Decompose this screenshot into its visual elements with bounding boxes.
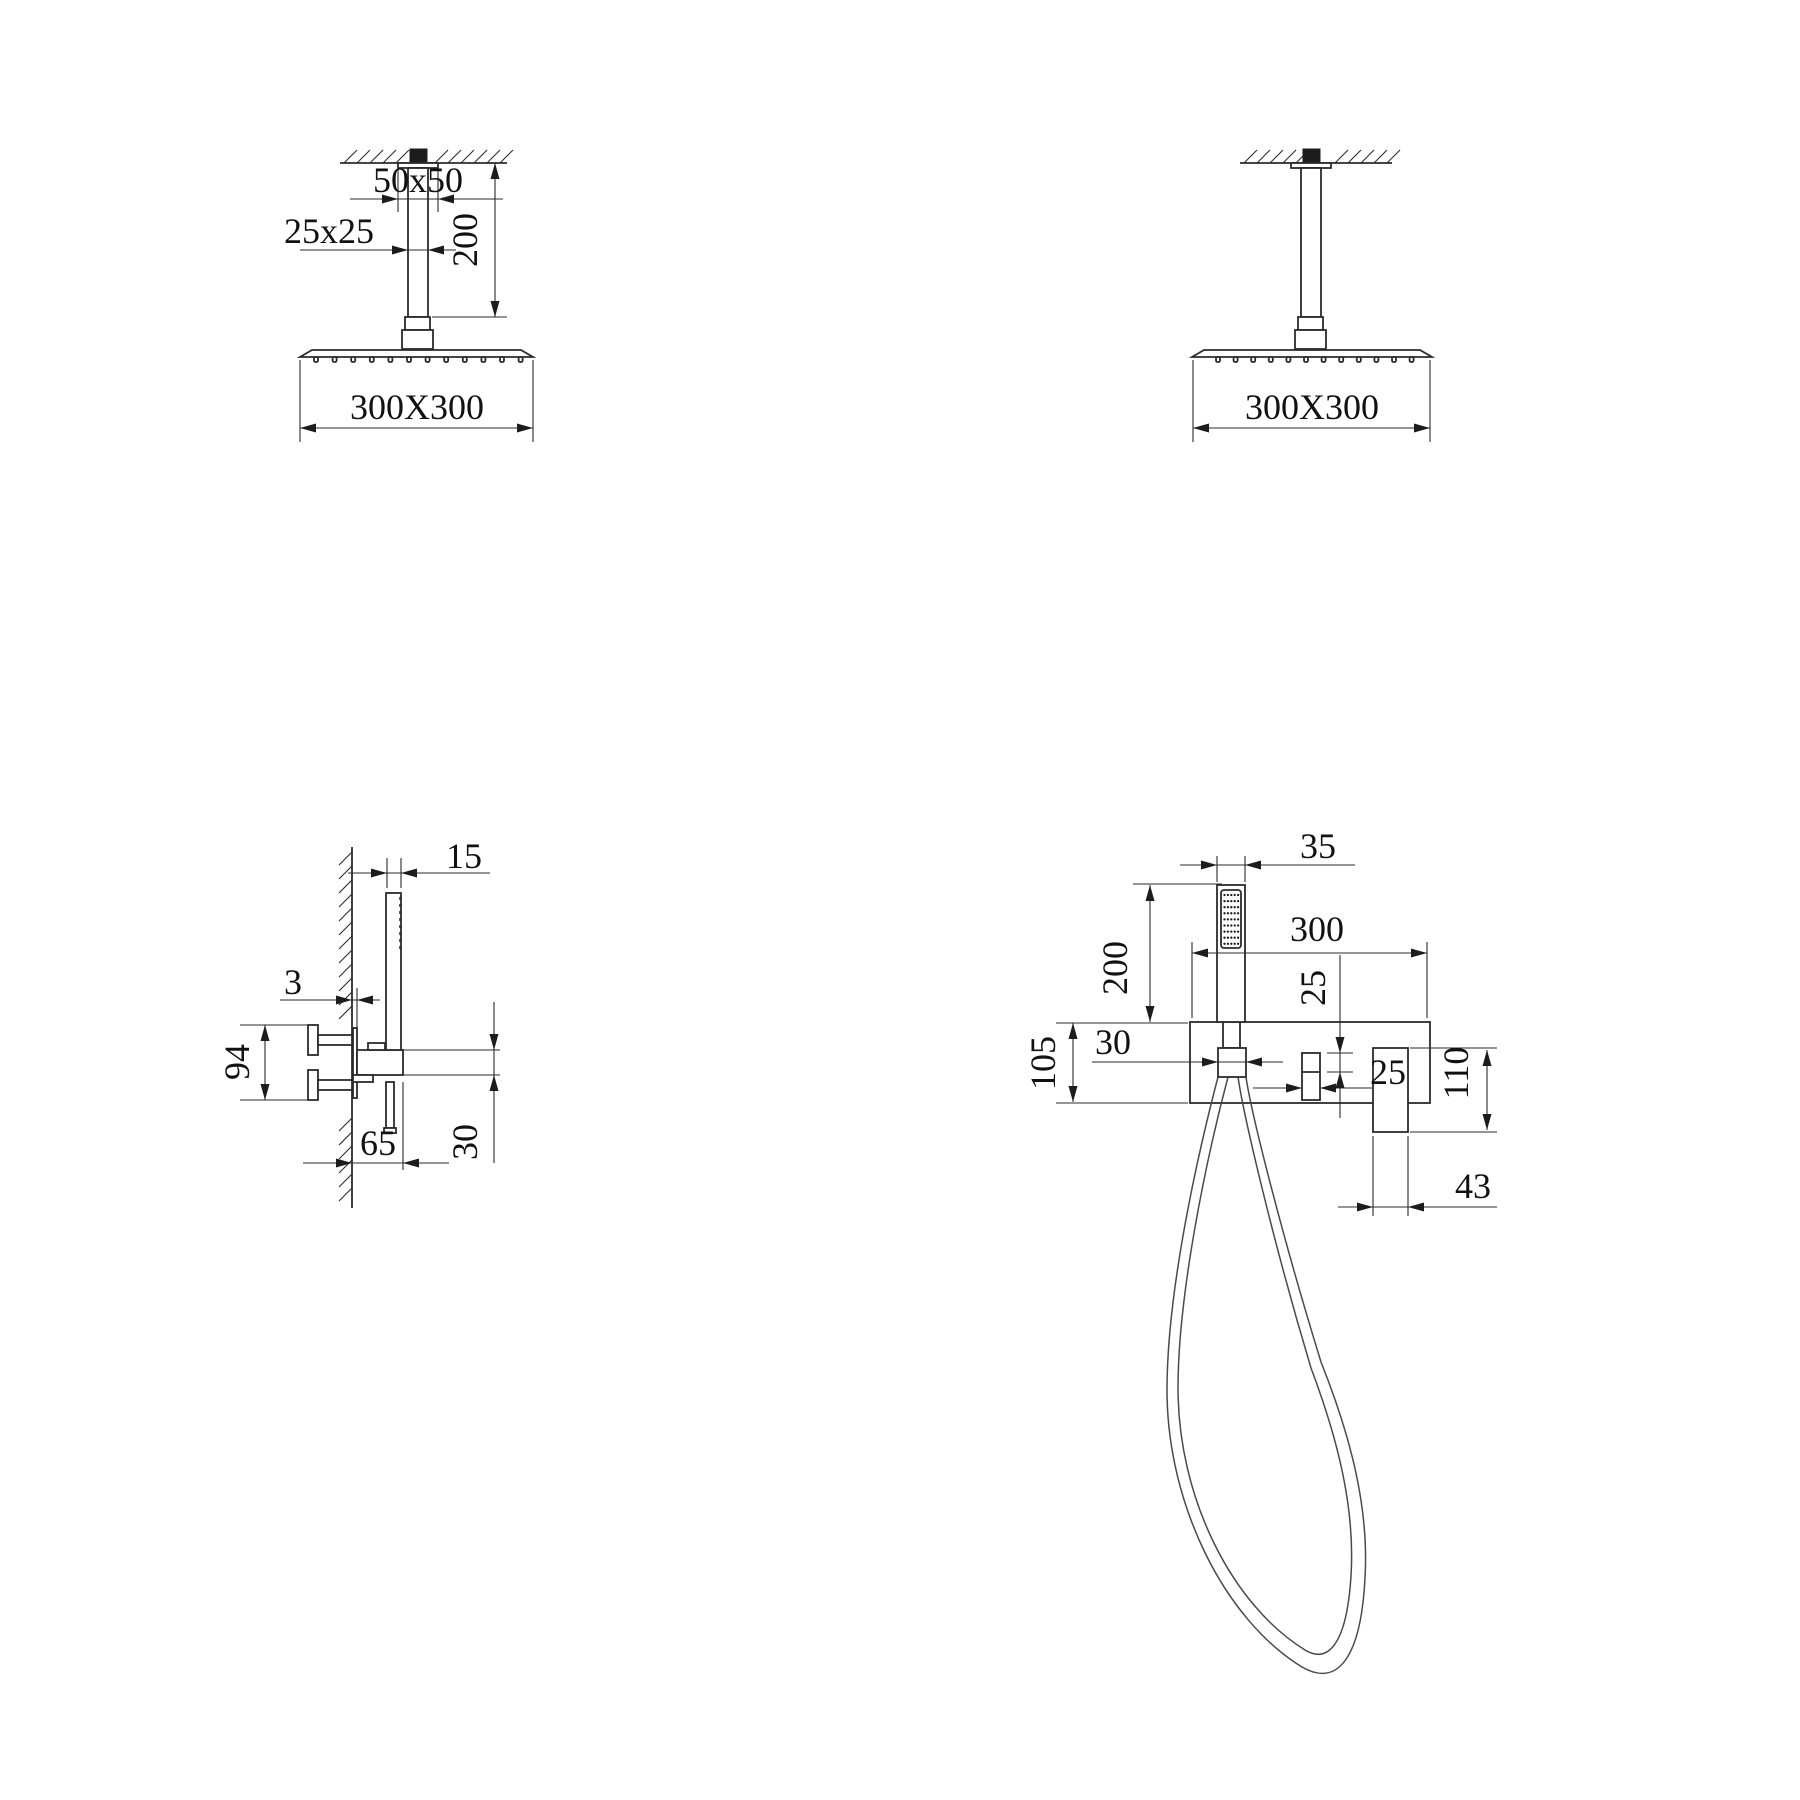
dim-label-valve-height: 94 bbox=[217, 1044, 257, 1080]
ceiling-pipe-stub bbox=[1303, 149, 1320, 163]
arrowhead bbox=[357, 996, 373, 1005]
nozzle bbox=[1286, 357, 1290, 362]
figure-ceiling-shower-right: 300X300 bbox=[1192, 149, 1432, 442]
hatch-tick bbox=[1244, 150, 1257, 163]
hatch-tick bbox=[339, 1132, 352, 1145]
hatch-tick bbox=[339, 880, 352, 893]
dim-label-spout-depth: 65 bbox=[360, 1123, 396, 1163]
hatch-tick bbox=[344, 150, 357, 163]
spray-dot bbox=[1234, 930, 1236, 932]
hatch-tick bbox=[339, 964, 352, 977]
arrowhead bbox=[428, 246, 444, 255]
arrowhead bbox=[1483, 1114, 1492, 1130]
dim-label-plate-height: 105 bbox=[1023, 1036, 1063, 1090]
spray-dot bbox=[1234, 943, 1236, 945]
dim-label-handle-width: 43 bbox=[1455, 1166, 1491, 1206]
arrowhead bbox=[517, 424, 533, 433]
dim-label-wall-gap: 3 bbox=[284, 962, 302, 1002]
spray-dot bbox=[1227, 924, 1229, 926]
wand-neck bbox=[1223, 1022, 1240, 1048]
hatch-tick bbox=[1335, 150, 1348, 163]
technical-drawing-page: 50x50 25x25 200 300X300 bbox=[0, 0, 1800, 1800]
spray-dot bbox=[1234, 900, 1236, 902]
spray-dot bbox=[1237, 943, 1239, 945]
arrowhead bbox=[392, 246, 408, 255]
hatch-tick bbox=[357, 150, 370, 163]
hatch-tick bbox=[500, 150, 513, 163]
spray-dot bbox=[1227, 912, 1229, 914]
hatch-tick bbox=[339, 908, 352, 921]
nozzle bbox=[1392, 357, 1396, 362]
shower-head-plate bbox=[300, 350, 533, 357]
hatch-tick bbox=[339, 1118, 352, 1131]
spray-dot bbox=[1230, 918, 1232, 920]
spray-dot bbox=[1237, 894, 1239, 896]
arrowhead bbox=[490, 1034, 499, 1050]
spray-dot bbox=[1230, 912, 1232, 914]
spray-dot bbox=[1223, 900, 1225, 902]
spray-dot bbox=[1237, 900, 1239, 902]
dim-label-holder-width: 30 bbox=[1095, 1022, 1131, 1062]
dim-label-flange-size: 50x50 bbox=[373, 160, 463, 200]
shower-head-plate bbox=[1192, 350, 1432, 357]
hatch-tick bbox=[474, 150, 487, 163]
arrowhead bbox=[1408, 1203, 1424, 1212]
spout-bottom-step bbox=[353, 1075, 373, 1082]
arrowhead bbox=[336, 996, 352, 1005]
supply-pipe-bottom bbox=[318, 1080, 352, 1090]
dim-label-wand-width: 35 bbox=[1300, 826, 1336, 866]
dim-label-spout-height: 30 bbox=[445, 1124, 485, 1160]
arrowhead bbox=[1483, 1050, 1492, 1066]
spray-dot bbox=[1237, 912, 1239, 914]
spray-dot bbox=[1237, 918, 1239, 920]
supply-pipe-cap-bottom bbox=[308, 1070, 318, 1100]
hatch-tick bbox=[339, 1174, 352, 1187]
dim-label-head-size: 300X300 bbox=[350, 387, 484, 427]
nozzle bbox=[1269, 357, 1273, 362]
arrowhead bbox=[401, 869, 417, 878]
nozzle bbox=[1234, 357, 1238, 362]
nozzle bbox=[1251, 357, 1255, 362]
dimension-head-300x300-left: 300X300 bbox=[300, 360, 533, 442]
spray-dot bbox=[1223, 906, 1225, 908]
figure-ceiling-shower-left: 50x50 25x25 200 300X300 bbox=[284, 149, 533, 442]
spray-dot bbox=[1237, 924, 1239, 926]
nozzle bbox=[426, 357, 430, 362]
spray-dot bbox=[1230, 906, 1232, 908]
nozzle bbox=[1304, 357, 1308, 362]
hatch-tick bbox=[339, 1006, 352, 1019]
dim-label-knob-offset: 25 bbox=[1293, 970, 1333, 1006]
hatch-tick bbox=[339, 1188, 352, 1201]
arrowhead bbox=[490, 1075, 499, 1091]
nozzle bbox=[1339, 357, 1343, 362]
arrowhead bbox=[300, 424, 316, 433]
spray-dot bbox=[1234, 924, 1236, 926]
arrowhead bbox=[1193, 424, 1209, 433]
nozzle bbox=[463, 357, 467, 362]
nozzle bbox=[1216, 357, 1220, 362]
nozzle bbox=[314, 357, 318, 362]
nozzle bbox=[370, 357, 374, 362]
nozzle bbox=[1357, 357, 1361, 362]
arrowhead bbox=[403, 1159, 419, 1168]
spray-dot bbox=[1237, 937, 1239, 939]
arrowhead bbox=[1069, 1023, 1078, 1039]
arrowhead bbox=[371, 869, 387, 878]
spray-dot bbox=[1223, 943, 1225, 945]
nozzle bbox=[519, 357, 523, 362]
arm-nut bbox=[1298, 317, 1323, 330]
dim-label-wand-height: 200 bbox=[1095, 941, 1135, 995]
hatch-tick bbox=[1348, 150, 1361, 163]
diverter-knob bbox=[1302, 1053, 1320, 1100]
nozzle bbox=[407, 357, 411, 362]
spray-dot bbox=[1223, 937, 1225, 939]
arm-connector bbox=[1295, 330, 1326, 349]
arrowhead bbox=[1201, 861, 1217, 870]
dim-label-head-size: 300X300 bbox=[1245, 387, 1379, 427]
arrowhead bbox=[1146, 1006, 1155, 1022]
spray-dot bbox=[1223, 894, 1225, 896]
hatch-tick bbox=[339, 894, 352, 907]
spray-dot bbox=[1230, 943, 1232, 945]
spray-dot bbox=[1227, 937, 1229, 939]
ceiling-hatch bbox=[1244, 150, 1400, 163]
dimension-wall-gap-3: 3 bbox=[280, 962, 380, 1030]
spray-dot bbox=[1230, 937, 1232, 939]
hatch-tick bbox=[1374, 150, 1387, 163]
hatch-tick bbox=[339, 936, 352, 949]
spray-dot bbox=[1230, 924, 1232, 926]
hatch-tick bbox=[1387, 150, 1400, 163]
arm-nut bbox=[405, 317, 430, 330]
hatch-tick bbox=[1361, 150, 1374, 163]
spray-dot bbox=[1237, 930, 1239, 932]
spray-dot bbox=[1223, 930, 1225, 932]
nozzle bbox=[388, 357, 392, 362]
dim-label-arm-size: 25x25 bbox=[284, 211, 374, 251]
spray-dot bbox=[1223, 912, 1225, 914]
dim-label-knob-width: 25 bbox=[1370, 1052, 1406, 1092]
arrowhead bbox=[1192, 949, 1208, 958]
arrowhead bbox=[261, 1025, 270, 1041]
dimension-spout-height-30: 30 bbox=[403, 1002, 500, 1163]
nozzle bbox=[1322, 357, 1326, 362]
hatch-tick bbox=[487, 150, 500, 163]
hatch-tick bbox=[1283, 150, 1296, 163]
spray-dot bbox=[1230, 930, 1232, 932]
spout-top-step bbox=[368, 1043, 385, 1050]
spray-dot bbox=[1230, 894, 1232, 896]
hatch-tick bbox=[1270, 150, 1283, 163]
nozzle bbox=[481, 357, 485, 362]
hose-outlet-tube bbox=[386, 1082, 394, 1128]
shower-arm bbox=[1301, 168, 1321, 317]
figure-hand-shower-side: 15 3 94 65 30 bbox=[217, 836, 500, 1208]
spray-dot bbox=[1227, 943, 1229, 945]
dim-label-arm-length: 200 bbox=[445, 213, 485, 267]
hatch-tick bbox=[1257, 150, 1270, 163]
spray-dot bbox=[1234, 894, 1236, 896]
spray-dot bbox=[1227, 894, 1229, 896]
drawing-canvas: 50x50 25x25 200 300X300 bbox=[0, 0, 1800, 1800]
spray-dot bbox=[1234, 918, 1236, 920]
nozzle bbox=[500, 357, 504, 362]
spray-dot bbox=[1234, 912, 1236, 914]
dim-label-plate-width: 300 bbox=[1290, 909, 1344, 949]
nozzle bbox=[351, 357, 355, 362]
spray-dot bbox=[1227, 930, 1229, 932]
arm-connector bbox=[402, 330, 433, 349]
spray-dot bbox=[1230, 900, 1232, 902]
shower-hose-outer bbox=[1167, 1077, 1366, 1673]
spray-dot bbox=[1234, 937, 1236, 939]
arrowhead bbox=[1414, 424, 1430, 433]
dimension-spout-depth-65: 65 bbox=[303, 1082, 449, 1170]
hatch-tick bbox=[339, 852, 352, 865]
nozzle bbox=[1374, 357, 1378, 362]
spout-body bbox=[357, 1050, 403, 1075]
nozzle bbox=[444, 357, 448, 362]
nozzle bbox=[333, 357, 337, 362]
dimension-wand-width-15: 15 bbox=[348, 836, 490, 888]
hatch-tick bbox=[339, 978, 352, 991]
arrowhead bbox=[491, 163, 500, 179]
supply-pipe-cap-top bbox=[308, 1025, 318, 1055]
hand-shower-wand-side bbox=[386, 893, 401, 1050]
spray-dot bbox=[1237, 906, 1239, 908]
dimension-arm-25x25: 25x25 bbox=[284, 211, 456, 251]
arrowhead bbox=[1146, 885, 1155, 901]
dimension-head-300x300-right: 300X300 bbox=[1193, 360, 1430, 442]
spray-dot bbox=[1227, 900, 1229, 902]
hatch-tick bbox=[339, 950, 352, 963]
dim-label-handle-height: 110 bbox=[1436, 1047, 1476, 1100]
hatch-tick bbox=[339, 1146, 352, 1159]
spray-dot bbox=[1227, 906, 1229, 908]
arrowhead bbox=[1357, 1203, 1373, 1212]
hatch-tick bbox=[339, 922, 352, 935]
spray-dot bbox=[1227, 918, 1229, 920]
arrowhead bbox=[1245, 861, 1261, 870]
dim-label-wand-width: 15 bbox=[446, 836, 482, 876]
dimension-wand-width-35: 35 bbox=[1180, 826, 1355, 882]
spray-dot bbox=[1223, 924, 1225, 926]
spray-dot bbox=[1234, 906, 1236, 908]
arrowhead bbox=[1069, 1086, 1078, 1102]
nozzle bbox=[1410, 357, 1414, 362]
wall-hatch bbox=[339, 852, 352, 1201]
supply-pipe-top bbox=[318, 1035, 352, 1045]
arrowhead bbox=[261, 1084, 270, 1100]
arrowhead bbox=[491, 301, 500, 317]
arrowhead bbox=[1411, 949, 1427, 958]
arrowhead bbox=[336, 1159, 352, 1168]
spray-dot bbox=[1223, 918, 1225, 920]
